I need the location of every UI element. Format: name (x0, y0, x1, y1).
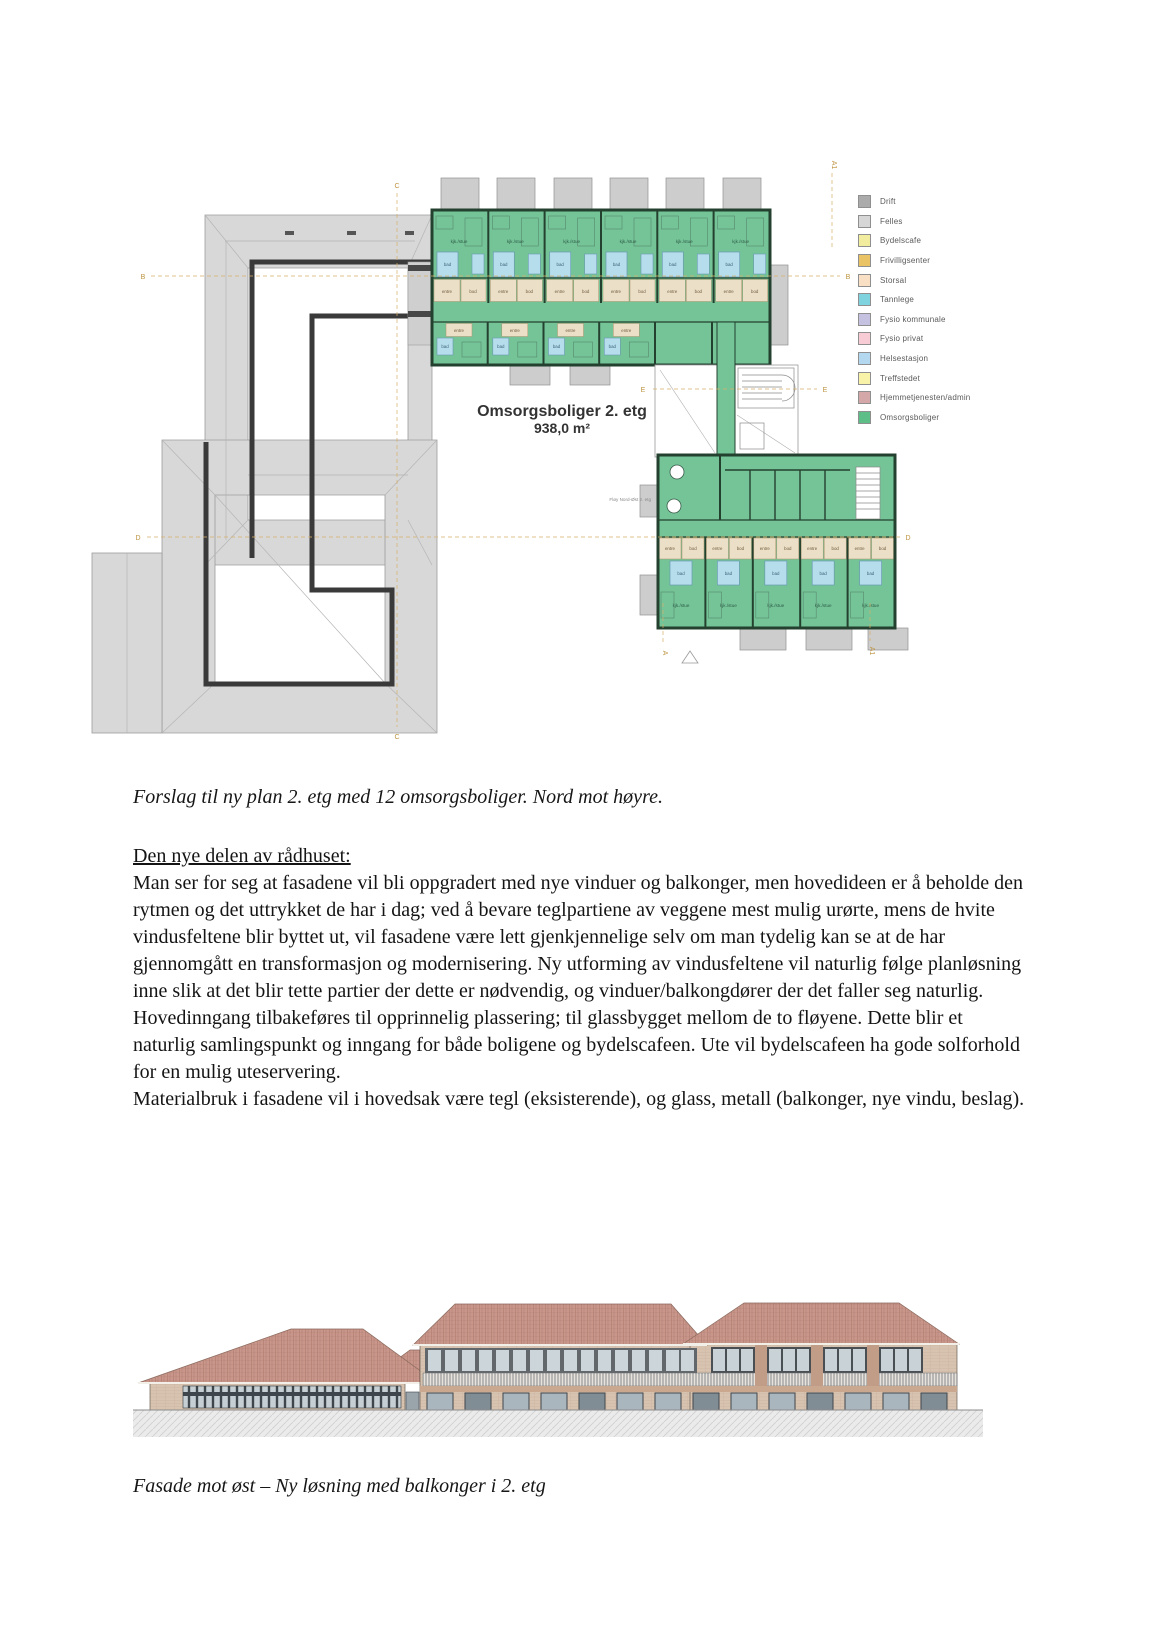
plan-caption: Forslag til ny plan 2. etg med 12 omsorg… (133, 786, 663, 809)
svg-text:C: C (394, 734, 399, 741)
facade-caption: Fasade mot øst – Ny løsning med balkonge… (133, 1475, 546, 1498)
document-page: kjk./stue bad entre bod entre bad (0, 0, 1150, 1636)
ground (133, 1410, 983, 1437)
svg-text:D: D (905, 535, 910, 542)
legend-label: Storsal (880, 276, 906, 285)
legend-item: Frivilligsenter (858, 251, 1028, 271)
svg-text:E: E (823, 387, 828, 394)
svg-text:B: B (141, 274, 146, 281)
legend-item: Fysio privat (858, 329, 1028, 349)
north-arrow (682, 651, 698, 663)
legend-label: Frivilligsenter (880, 256, 930, 265)
legend-swatch (858, 293, 871, 306)
legend-label: Helsestasjon (880, 354, 928, 363)
svg-text:A1: A1 (830, 161, 837, 170)
legend-item: Drift (858, 192, 1028, 212)
legend-label: Omsorgsboliger (880, 413, 939, 422)
legend-label: Fysio privat (880, 334, 923, 343)
section-heading: Den nye delen av rådhuset: (133, 843, 1030, 870)
body-text: Den nye delen av rådhuset: Man ser for s… (133, 843, 1030, 1113)
legend: Drift Felles Bydelscafe Frivilligsenter … (858, 192, 1028, 427)
svg-text:E: E (641, 387, 646, 394)
legend-swatch (858, 391, 871, 404)
legend-item: Omsorgsboliger (858, 408, 1028, 428)
legend-swatch (858, 411, 871, 424)
legend-label: Tannlege (880, 295, 914, 304)
link-bridge (408, 262, 432, 345)
legend-label: Hjemmetjenesten/admin (880, 393, 970, 402)
stair-east (856, 467, 880, 519)
legend-swatch (858, 254, 871, 267)
plan-title: Omsorgsboliger 2. etg (477, 403, 647, 420)
legend-swatch (858, 313, 871, 326)
facade-main-building (406, 1303, 959, 1412)
roof-center (413, 1304, 707, 1345)
paragraph: Materialbruk i fasadene vil i hovedsak v… (133, 1086, 1030, 1113)
legend-label: Drift (880, 197, 896, 206)
legend-swatch (858, 274, 871, 287)
roof-right (683, 1303, 959, 1344)
legend-item: Tannlege (858, 290, 1028, 310)
legend-item: Fysio kommunale (858, 310, 1028, 330)
legend-swatch (858, 234, 871, 247)
wing-label: Fløy Nord-Øst 2. etg (609, 497, 651, 502)
plan-area: 938,0 m² (534, 420, 590, 436)
legend-item: Helsestasjon (858, 349, 1028, 369)
svg-text:A1: A1 (868, 647, 875, 656)
legend-label: Bydelscafe (880, 236, 921, 245)
legend-label: Fysio kommunale (880, 315, 946, 324)
legend-item: Felles (858, 212, 1028, 232)
facade-elevation-drawing (125, 1240, 995, 1445)
legend-label: Felles (880, 217, 903, 226)
legend-item: Treffstedet (858, 368, 1028, 388)
legend-label: Treffstedet (880, 374, 920, 383)
legend-swatch (858, 195, 871, 208)
svg-text:A: A (661, 651, 668, 656)
east-wing (640, 455, 908, 650)
stair (738, 368, 795, 408)
legend-swatch (858, 372, 871, 385)
svg-text:D: D (135, 535, 140, 542)
svg-text:B: B (846, 274, 851, 281)
existing-building-roof (92, 215, 437, 733)
legend-swatch (858, 215, 871, 228)
legend-swatch (858, 352, 871, 365)
legend-item: Storsal (858, 270, 1028, 290)
paragraph: Man ser for seg at fasadene vil bli oppg… (133, 870, 1030, 1086)
legend-item: Hjemmetjenesten/admin (858, 388, 1028, 408)
svg-text:C: C (394, 183, 399, 190)
legend-swatch (858, 332, 871, 345)
legend-item: Bydelscafe (858, 231, 1028, 251)
